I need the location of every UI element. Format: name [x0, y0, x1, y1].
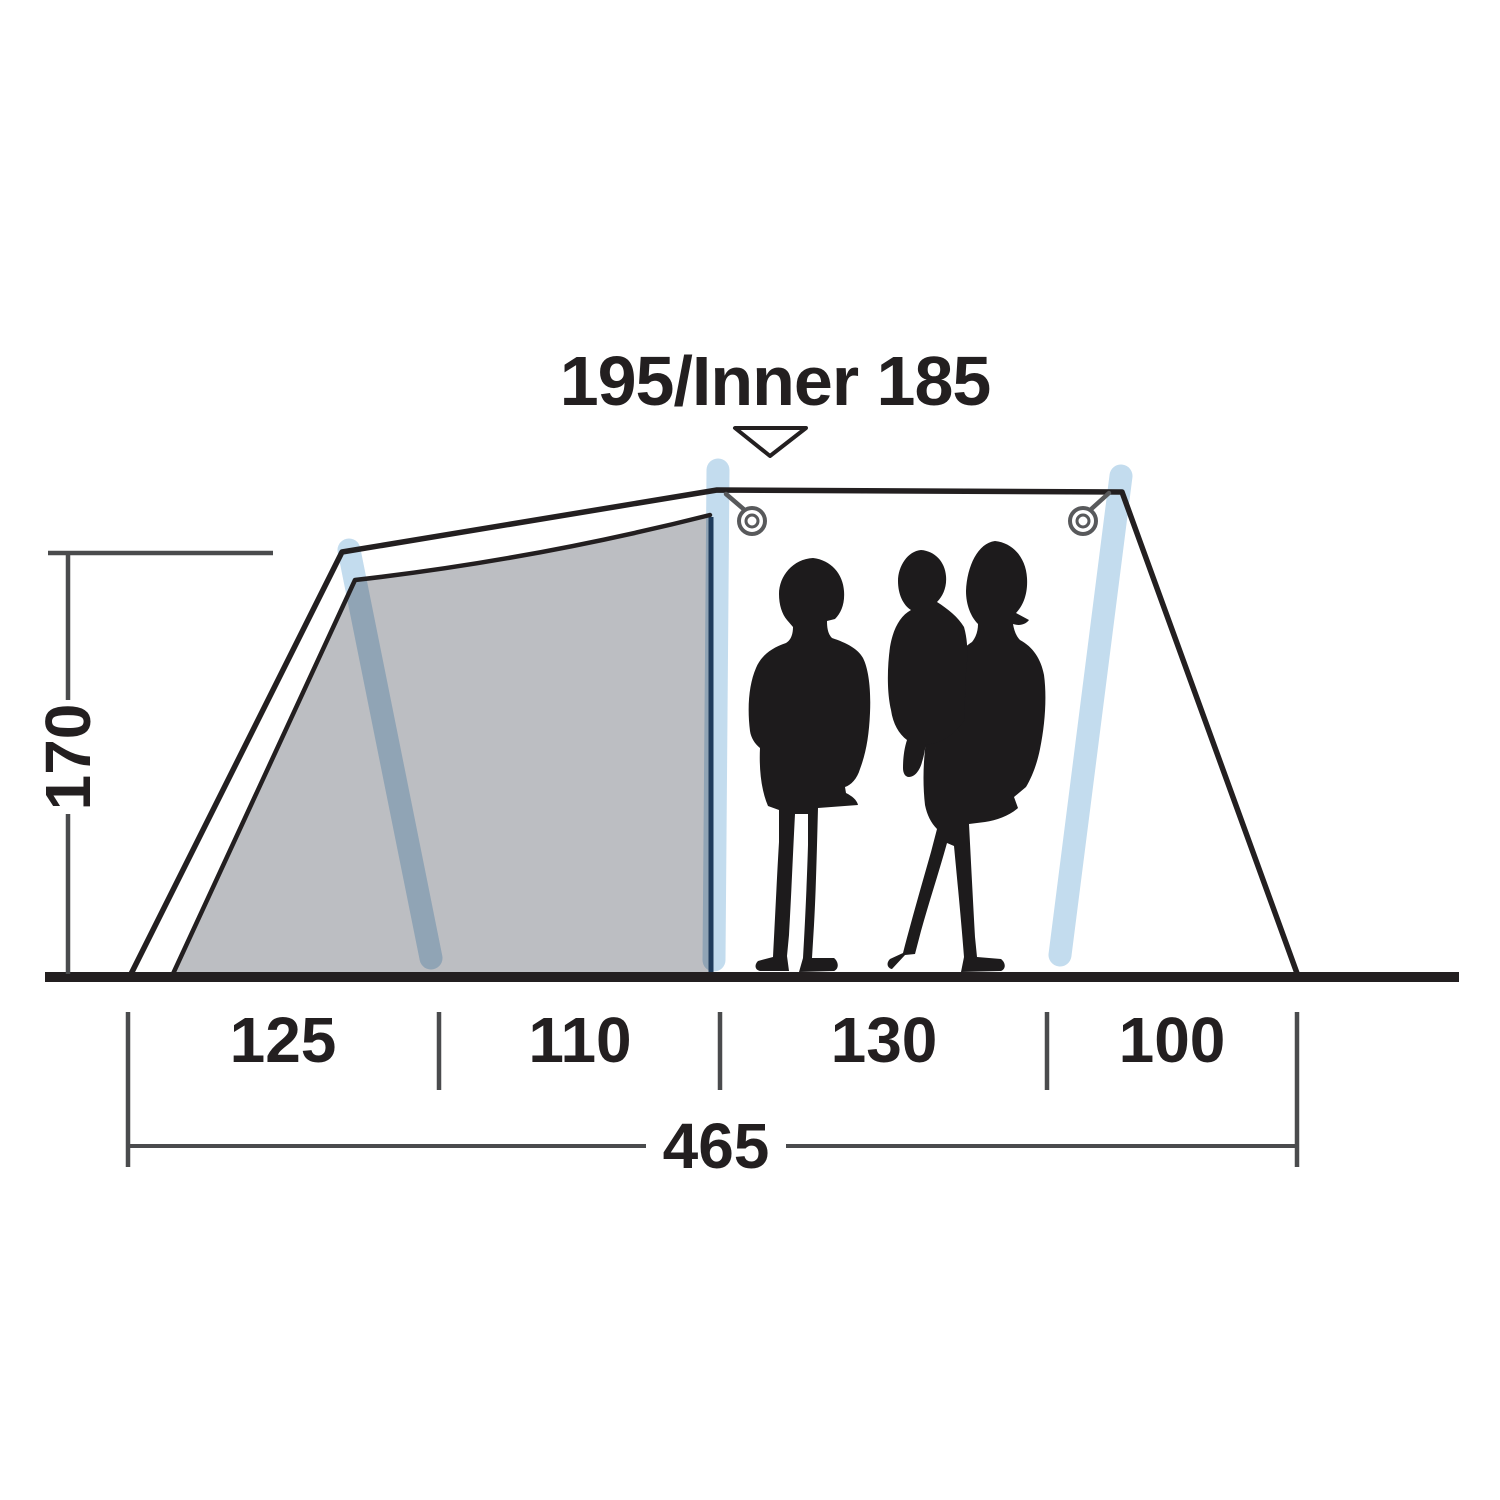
- figure-adult-silhouette: [749, 558, 871, 972]
- peak-height-label: 195/Inner 185: [560, 342, 991, 420]
- ring-inner-icon: [746, 515, 758, 527]
- ring-inner-icon: [1077, 515, 1089, 527]
- hanging-ring-left: [726, 494, 765, 534]
- floor-dimensions: 125 110 130 100 465: [128, 1004, 1297, 1182]
- diagram-canvas: 195/Inner 185: [0, 0, 1500, 1500]
- air-pole-center-icon: [714, 470, 718, 960]
- total-width-label: 465: [663, 1110, 770, 1182]
- segment-label-2: 110: [528, 1004, 631, 1076]
- down-arrow-icon: [735, 428, 806, 456]
- segment-label-3: 130: [831, 1004, 938, 1076]
- height-value-label: 170: [32, 704, 104, 811]
- segment-label-4: 100: [1119, 1004, 1226, 1076]
- figure-adult-with-child-silhouette: [888, 541, 1046, 972]
- inner-tent-panel: [172, 515, 710, 974]
- segment-label-1: 125: [230, 1004, 337, 1076]
- tent-dimension-diagram: 195/Inner 185: [0, 0, 1500, 1500]
- air-pole-right-icon: [1060, 476, 1121, 955]
